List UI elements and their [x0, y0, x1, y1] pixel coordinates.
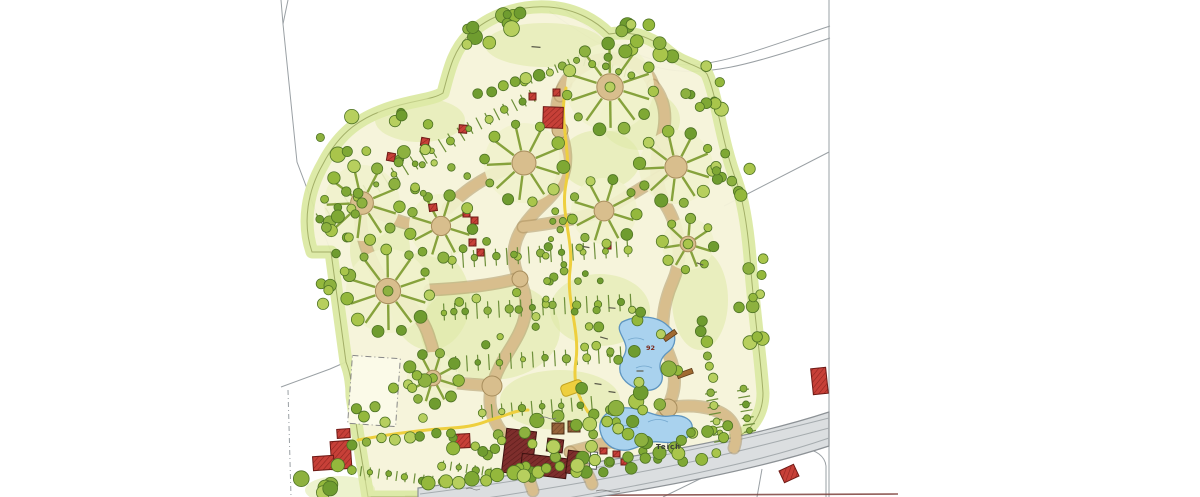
pond-name-label: Teich: [656, 443, 681, 451]
site-plan-map: 92 Teich: [0, 0, 1200, 497]
pond-number-label: 92: [646, 344, 655, 352]
scanned-site-plan-page: 92 Teich: [0, 0, 1200, 497]
